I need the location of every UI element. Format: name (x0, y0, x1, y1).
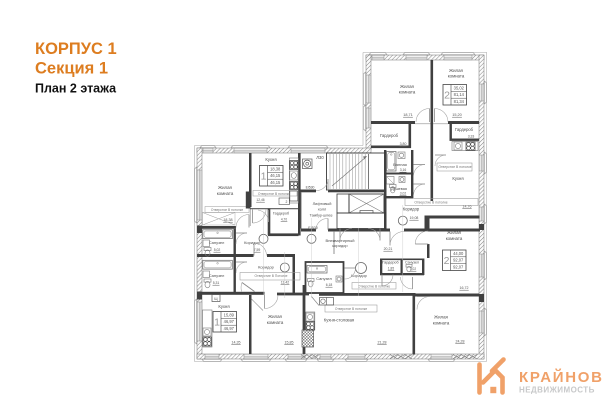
svg-text:14,76: 14,76 (463, 205, 472, 209)
svg-text:14,35: 14,35 (232, 341, 241, 345)
svg-text:комната: комната (399, 90, 416, 95)
svg-text:Отверстие В потолке: Отверстие В потолке (438, 165, 471, 169)
svg-text:План 2 этажа: План 2 этажа (35, 82, 117, 96)
svg-text:18,38: 18,38 (223, 218, 232, 222)
svg-text:Кухня-столовая: Кухня-столовая (324, 318, 354, 323)
svg-text:11,42: 11,42 (281, 281, 289, 285)
svg-text:15,85: 15,85 (285, 341, 294, 345)
svg-text:Кухня: Кухня (452, 176, 463, 181)
svg-text:Кухня: Кухня (265, 157, 276, 162)
svg-text:92,07: 92,07 (453, 258, 464, 263)
svg-text:3,02: 3,02 (400, 192, 407, 196)
svg-text:16,72: 16,72 (460, 286, 469, 290)
svg-text:Гардероб: Гардероб (455, 127, 474, 132)
svg-text:Секция 1: Секция 1 (35, 60, 108, 78)
svg-text:Санузел: Санузел (209, 273, 225, 278)
svg-text:15,20: 15,20 (452, 113, 462, 117)
svg-text:Отверстие В потолке: Отверстие В потолке (258, 192, 291, 196)
svg-text:Жилая: Жилая (400, 84, 415, 89)
svg-text:6,18: 6,18 (326, 283, 333, 287)
svg-text:2: 2 (444, 255, 450, 267)
svg-text:20,21: 20,21 (384, 247, 393, 251)
svg-text:комната: комната (433, 321, 450, 326)
svg-text:Гардероб: Гардероб (382, 261, 398, 265)
svg-text:комната: комната (217, 191, 234, 196)
svg-text:EI530: EI530 (306, 186, 315, 190)
svg-text:18,71: 18,71 (403, 113, 413, 117)
svg-text:92,07: 92,07 (453, 265, 464, 270)
svg-text:НЕДВИЖИМОСТЬ: НЕДВИЖИМОСТЬ (519, 386, 595, 395)
svg-text:Жилая: Жилая (268, 314, 283, 319)
svg-text:Отверстие В Потолке: Отверстие В Потолке (255, 274, 288, 278)
svg-text:Отверстие В потолке: Отверстие В потолке (335, 307, 368, 311)
svg-text:46,15: 46,15 (270, 180, 281, 185)
svg-text:24,28: 24,28 (456, 340, 465, 344)
svg-text:81,14: 81,14 (454, 92, 465, 97)
svg-text:46,15: 46,15 (270, 173, 281, 178)
svg-text:Санузел: Санузел (405, 261, 419, 265)
svg-text:7,59: 7,59 (254, 248, 261, 252)
svg-text:Жилая: Жилая (447, 230, 462, 235)
svg-text:Коридор: Коридор (403, 207, 420, 212)
svg-text:44,00: 44,00 (453, 251, 464, 256)
svg-text:Кухня: Кухня (218, 304, 229, 309)
svg-text:3,80: 3,80 (400, 142, 407, 146)
svg-text:Отверстие В потолке: Отверстие В потолке (211, 208, 244, 212)
svg-text:4,70: 4,70 (281, 218, 287, 222)
svg-text:1: 1 (214, 317, 220, 329)
svg-text:18,38: 18,38 (270, 166, 281, 171)
svg-text:Гардероб: Гардероб (273, 212, 289, 216)
svg-text:комната: комната (446, 236, 463, 241)
svg-text:3,33: 3,33 (468, 135, 475, 139)
svg-text:коридор: коридор (332, 243, 348, 248)
svg-text:Тамбур-шлюз: Тамбур-шлюз (310, 214, 333, 218)
svg-text:81,34: 81,34 (454, 99, 465, 104)
svg-text:Коридор: Коридор (244, 240, 261, 245)
svg-text:15,89: 15,89 (224, 312, 235, 317)
svg-text:Гардероб: Гардероб (380, 133, 399, 138)
svg-text:3,16: 3,16 (400, 168, 407, 172)
svg-text:Л30: Л30 (316, 155, 324, 160)
svg-text:2: 2 (444, 90, 450, 102)
svg-text:1: 1 (261, 171, 267, 183)
svg-text:Жилая: Жилая (449, 68, 464, 73)
svg-text:Отверстие В потолке: Отверстие В потолке (358, 284, 391, 288)
svg-text:Санузел: Санузел (209, 240, 225, 245)
svg-text:EI530: EI530 (308, 226, 317, 230)
svg-text:комната: комната (448, 74, 465, 79)
svg-text:комната: комната (267, 320, 284, 325)
svg-text:Санузел: Санузел (316, 276, 332, 281)
svg-text:Душевая: Душевая (391, 187, 407, 191)
svg-text:2: 2 (286, 200, 288, 204)
svg-text:21,28: 21,28 (378, 341, 387, 345)
svg-text:1,85: 1,85 (388, 267, 394, 271)
svg-text:46,97: 46,97 (224, 319, 235, 324)
svg-text:Жилая: Жилая (218, 185, 233, 190)
svg-text:КРАЙНОВ: КРАЙНОВ (519, 368, 604, 386)
svg-text:Ванная: Ванная (393, 162, 407, 167)
svg-text:Отверстие В потолке: Отверстие В потолке (414, 201, 447, 205)
svg-text:46,97: 46,97 (224, 326, 235, 331)
svg-text:19,08: 19,08 (410, 216, 419, 220)
svg-text:35,02: 35,02 (454, 85, 465, 90)
svg-text:холл: холл (318, 207, 327, 212)
svg-text:5,02: 5,02 (214, 248, 221, 252)
svg-text:КОРПУС 1: КОРПУС 1 (35, 40, 117, 58)
svg-text:5,31: 5,31 (213, 281, 220, 285)
svg-text:Лифтовый: Лифтовый (313, 201, 332, 206)
svg-text:Жилая: Жилая (434, 315, 449, 320)
svg-text:12,46: 12,46 (256, 198, 264, 202)
svg-text:Коридор: Коридор (258, 265, 275, 270)
